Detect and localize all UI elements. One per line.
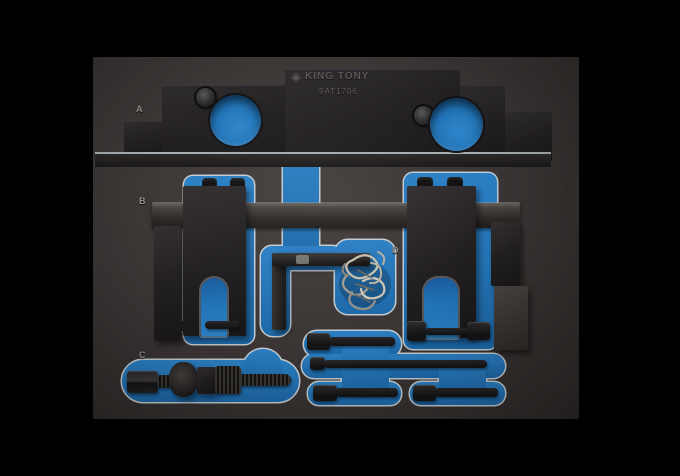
compartment-label-a: A <box>136 104 143 114</box>
compartment-label-c: C <box>139 350 146 360</box>
timing-chain <box>0 0 680 476</box>
compartment-label-b: B <box>139 196 146 206</box>
compartment-label-d: D <box>392 245 399 255</box>
product-photo: A B C D ◈ KING TONY 9AT1706 <box>0 0 680 476</box>
